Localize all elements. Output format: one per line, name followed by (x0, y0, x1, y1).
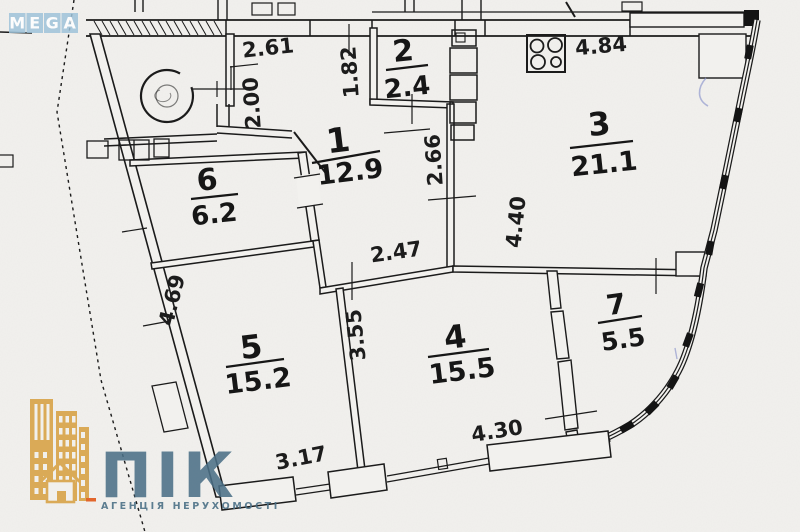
room-6-number: 6 (195, 162, 219, 199)
pik-logo-subtitle: АГЕНЦІЯ НЕРУХОМОСТІ (101, 501, 280, 512)
pik-logo-accent-dash (86, 498, 96, 502)
room-7-area: 5.5 (599, 322, 647, 357)
dim-2-00: 2.00 (238, 76, 266, 129)
mega-letter-e: E (29, 14, 40, 33)
room-6-area: 6.2 (190, 198, 239, 233)
room-3-number: 3 (586, 104, 612, 144)
mega-letter-a: A (64, 14, 77, 33)
mega-letter-m: M (9, 14, 25, 33)
dim-1-82: 1.82 (336, 45, 364, 98)
mega-letter-g: G (46, 14, 59, 33)
dim-2-66: 2.66 (420, 133, 448, 186)
floorplan-photo: 1 12.9 2 2.4 3 21.1 4 15.5 5 15.2 6 6.2 (0, 0, 800, 532)
floorplan-canvas: 1 12.9 2 2.4 3 21.1 4 15.5 5 15.2 6 6.2 (0, 0, 800, 532)
dim-4-84: 4.84 (574, 32, 628, 60)
room-2-number: 2 (391, 33, 415, 70)
room-2-area: 2.4 (383, 71, 432, 106)
